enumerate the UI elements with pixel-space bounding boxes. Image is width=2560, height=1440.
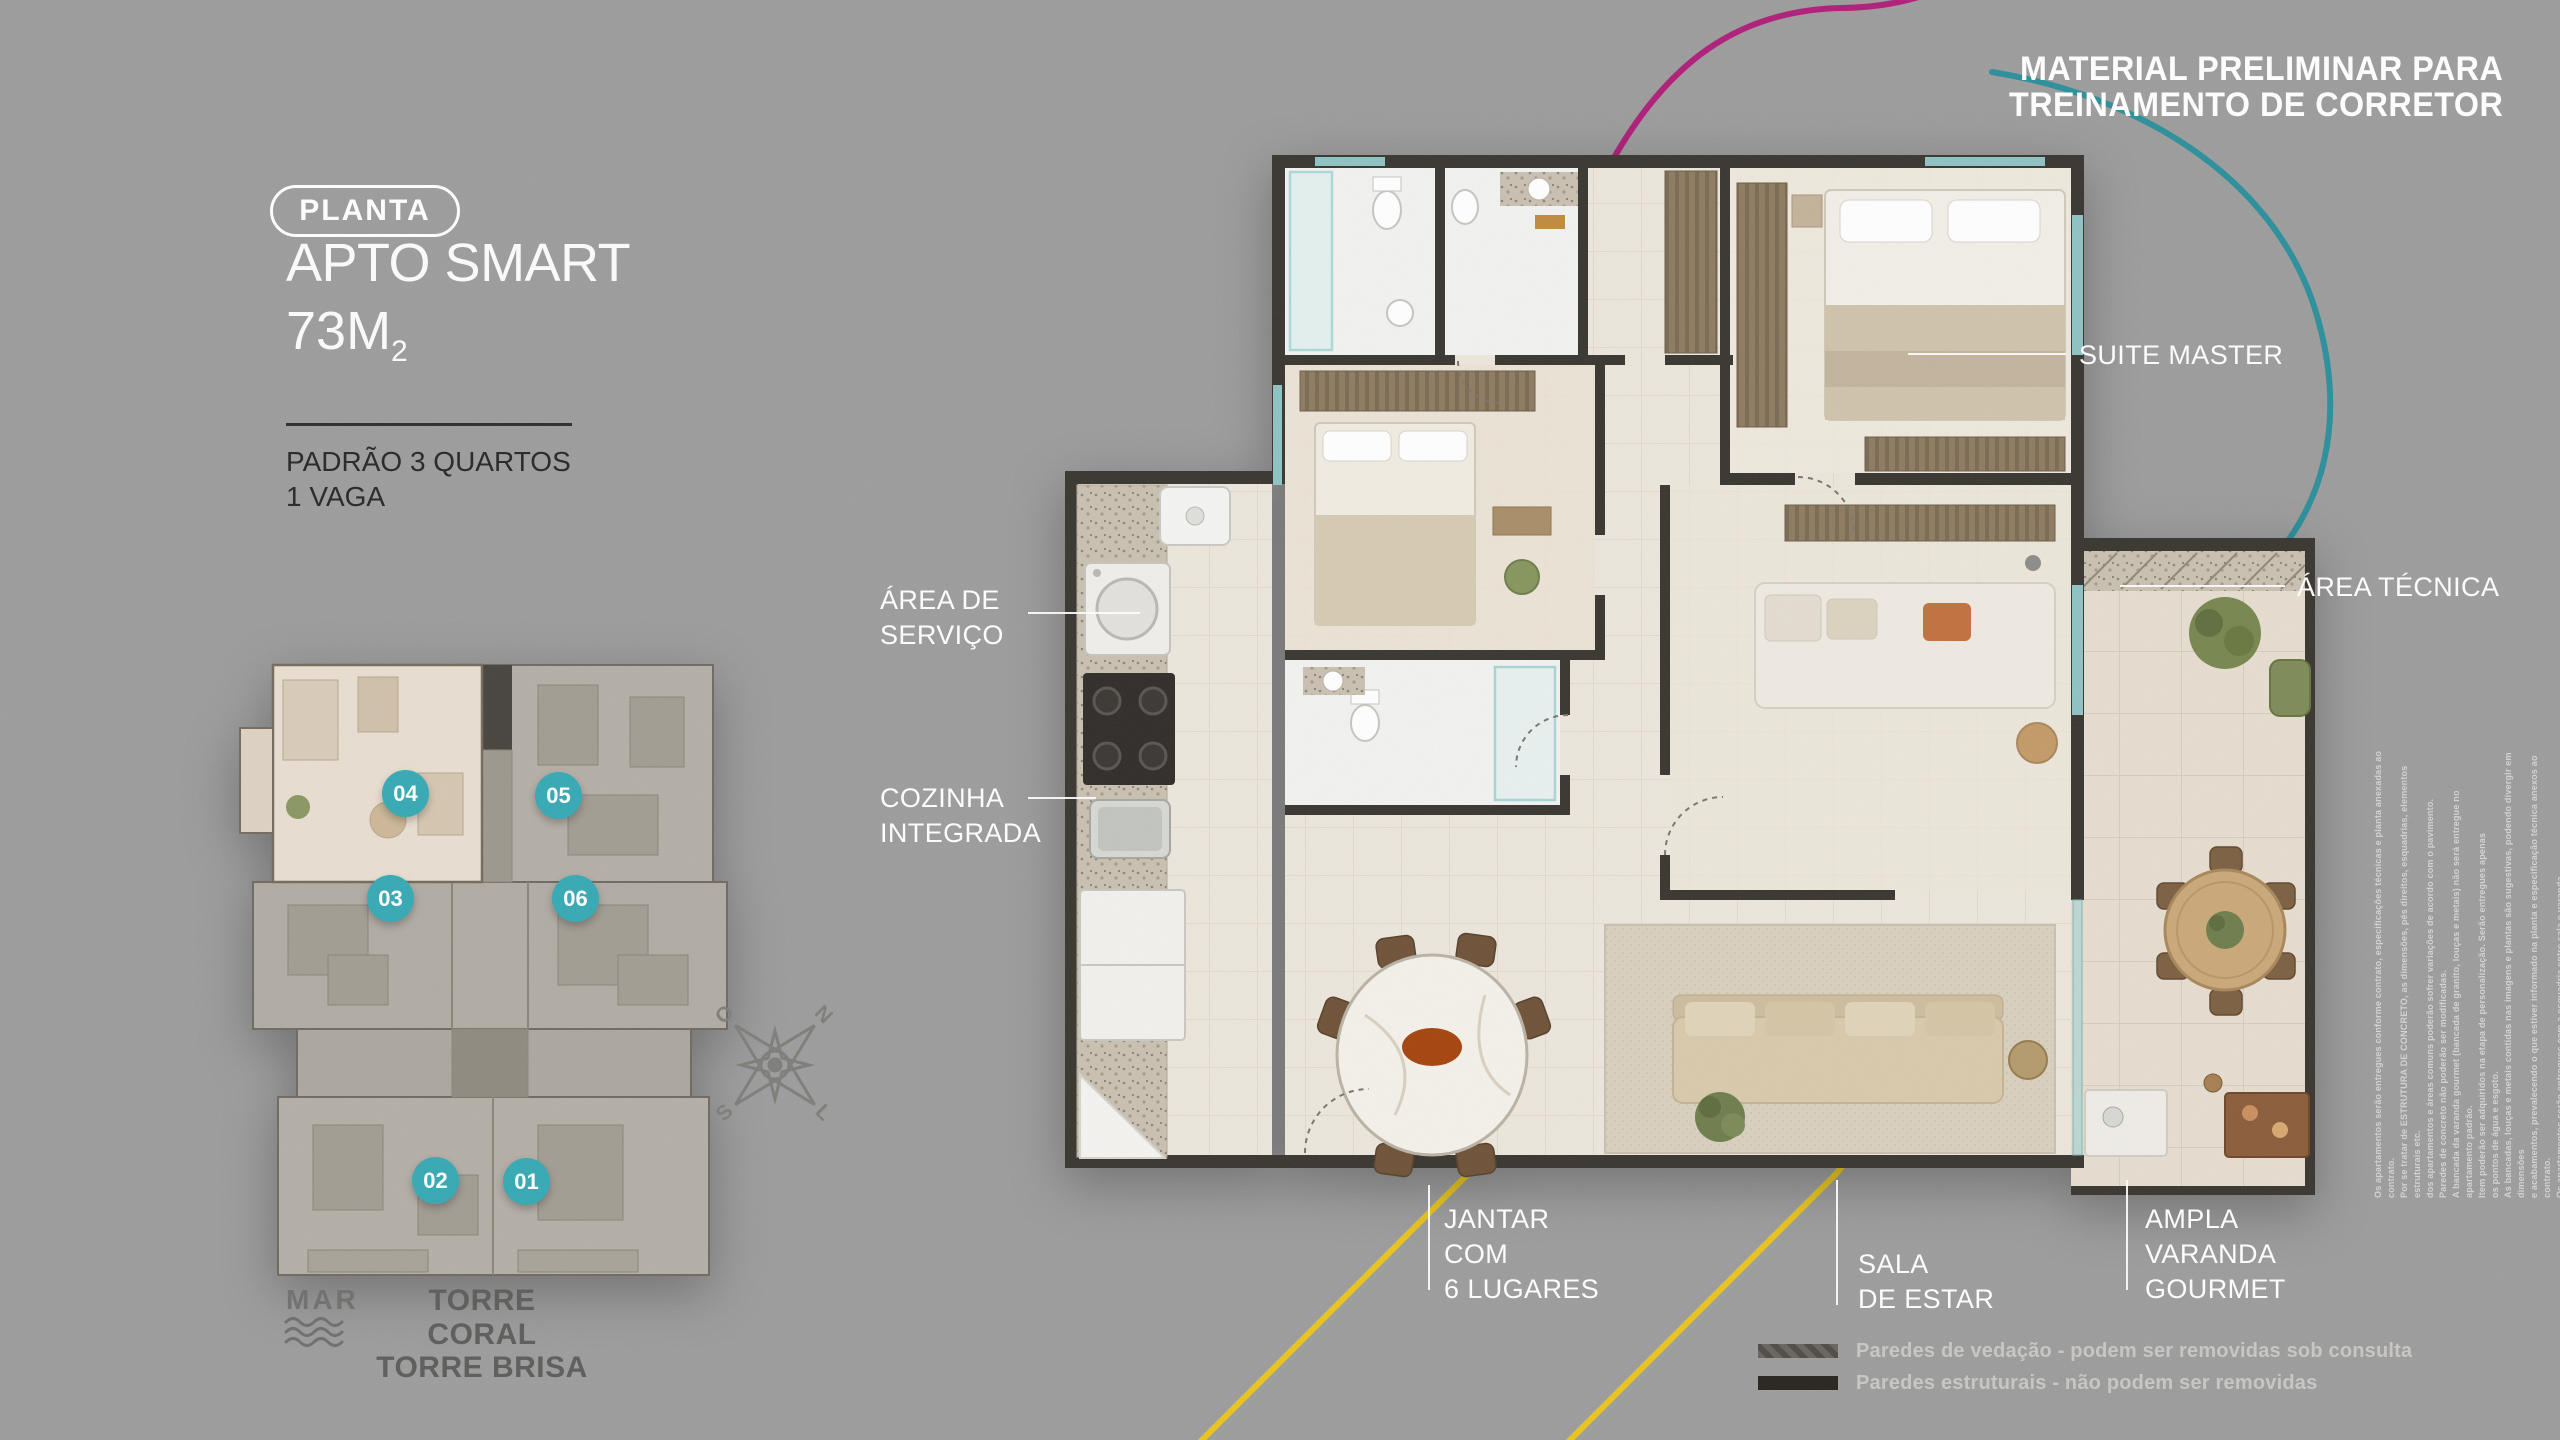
label-varanda-line1: AMPLA [2145,1202,2286,1237]
compass-rose-icon: N O S L [695,985,855,1145]
compass-s: S [712,1100,738,1126]
magenta-curve [1606,0,1988,172]
compass-n: N [810,1001,837,1028]
fine-print-line: os pontos de água e esgoto. [2489,736,2502,1198]
planta-badge: PLANTA [270,185,460,237]
tower-name-coral: TORRE CORAL [372,1284,592,1351]
label-varanda-line2: VARANDA [2145,1237,2286,1272]
legend-label-vedacao: Paredes de vedação - podem ser removidas… [1856,1340,2412,1363]
unit-badge-05: 05 [535,772,582,819]
label-area-tecnica: ÁREA TÉCNICA [2297,570,2499,605]
leader-area-tecnica [2120,585,2285,587]
unit-badge-04: 04 [382,770,429,817]
training-notice: MATERIAL PRELIMINAR PARA TREINAMENTO DE … [2009,52,2503,123]
legend-swatch-vedacao [1758,1344,1838,1358]
leader-suite-master [1908,353,2066,355]
key-plate [238,655,738,1280]
fine-print-line: e acabamentos, prevalecendo o que estive… [2528,736,2554,1198]
fine-print-line: Os apartamentos serão entregues conforme… [2372,736,2398,1198]
label-sala: SALA DE ESTAR [1858,1247,1994,1317]
unit-badge-06: 06 [552,875,599,922]
fine-print-line: Paredes de concreto não poderão ser modi… [2437,736,2450,1198]
unit-badge-01: 01 [503,1158,550,1205]
key-plate-unit-highlight [240,665,482,882]
legend-label-estrutural: Paredes estruturais - não podem ser remo… [1856,1372,2317,1395]
unit-badge-06-label: 06 [563,886,587,912]
legend-swatch-estrutural [1758,1376,1838,1390]
leader-varanda [2126,1180,2128,1290]
label-area-servico: ÁREA DE SERVIÇO [880,583,1004,653]
label-jantar-line2: COM [1444,1237,1599,1272]
page-title: APTO SMART [286,232,630,294]
compass-o: O [711,1001,739,1029]
label-area-servico-line1: ÁREA DE [880,583,1004,618]
unit-badge-05-label: 05 [546,783,570,809]
label-area-servico-line2: SERVIÇO [880,618,1004,653]
spec-lines: PADRÃO 3 QUARTOS 1 VAGA [286,444,571,514]
label-cozinha: COZINHA INTEGRADA [880,781,1041,851]
fine-print-line: Item poderão ser adquiridos na etapa de … [2476,736,2489,1198]
unit-badge-02-label: 02 [423,1168,447,1194]
area-value: 73M2 [286,300,408,369]
fine-print-line: As bancadas, louças e metais contidas na… [2502,736,2528,1198]
key-plate-lobby [452,1029,528,1097]
spec-line-2: 1 VAGA [286,479,571,514]
leader-area-servico [1028,612,1140,614]
label-jantar-line3: 6 LUGARES [1444,1272,1599,1307]
fine-print-line: Por se tratar de ESTRUTURA DE CONCRETO, … [2398,736,2424,1198]
training-notice-line1: MATERIAL PRELIMINAR PARA [2009,52,2503,88]
unit-badge-02: 02 [412,1157,459,1204]
leader-jantar [1428,1185,1430,1290]
label-cozinha-line2: INTEGRADA [880,816,1041,851]
unit-badge-01-label: 01 [514,1169,538,1195]
waves-icon [283,1316,353,1350]
unit-badge-03: 03 [367,875,414,922]
area-number: 73M [286,301,391,361]
area-sub: 2 [391,335,408,368]
label-jantar-line1: JANTAR [1444,1202,1599,1237]
fine-print-line: Os apartamentos serão entregues com a es… [2554,736,2560,1198]
label-jantar: JANTAR COM 6 LUGARES [1444,1202,1599,1307]
poster-canvas: PLANTA APTO SMART 73M2 PADRÃO 3 QUARTOS … [0,0,2560,1440]
label-cozinha-line1: COZINHA [880,781,1041,816]
label-sala-line2: DE ESTAR [1858,1282,1994,1317]
tower-names: TORRE CORAL TORRE BRISA [372,1284,592,1385]
tower-name-brisa: TORRE BRISA [372,1351,592,1385]
leader-cozinha [1028,797,1096,799]
fine-print-line: dos apartamentos e áreas comuns poderão … [2424,736,2437,1198]
label-varanda: AMPLA VARANDA GOURMET [2145,1202,2286,1307]
legal-fine-print: Os apartamentos serão entregues conforme… [2372,736,2560,1198]
sea-label: MAR [286,1284,359,1316]
fine-print-line: A bancada da varanda gourmet (bancada de… [2450,736,2476,1198]
label-suite-master: SUITE MASTER [2079,338,2283,373]
label-varanda-line3: GOURMET [2145,1272,2286,1307]
unit-badge-04-label: 04 [393,781,417,807]
planta-badge-label: PLANTA [299,194,430,228]
title-divider [286,423,572,426]
floor-plan [1065,155,2315,1195]
unit-badge-03-label: 03 [378,886,402,912]
spec-line-1: PADRÃO 3 QUARTOS [286,444,571,479]
leader-sala [1836,1180,1838,1305]
training-notice-line2: TREINAMENTO DE CORRETOR [2009,88,2503,124]
label-sala-line1: SALA [1858,1247,1994,1282]
